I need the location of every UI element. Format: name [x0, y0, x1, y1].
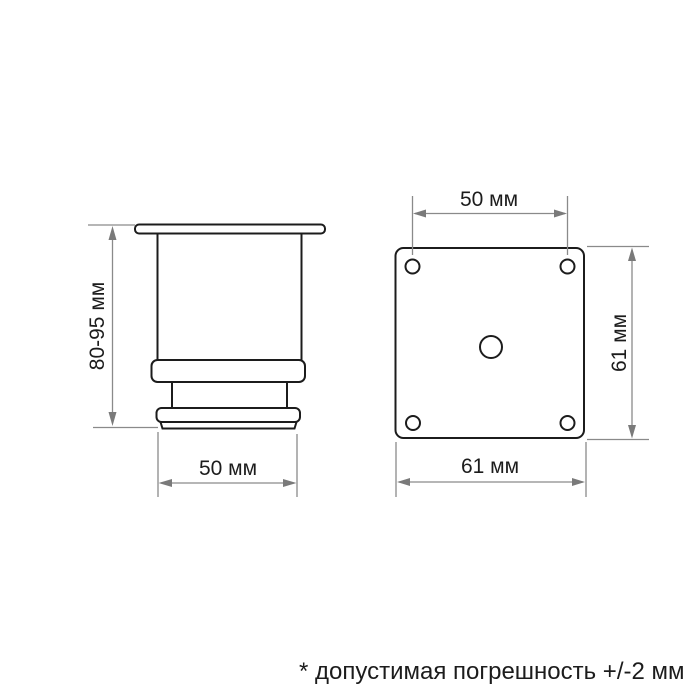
side-view-adjuster-collar: [152, 360, 306, 382]
side-view-drawing: [135, 225, 325, 429]
top-view-hole-spacing-dimension: 50 мм: [413, 188, 568, 255]
plate-width-arrow-left-icon: [397, 478, 410, 486]
hole-spacing-arrow-right-icon: [554, 210, 567, 218]
width-dim-label: 50 мм: [199, 457, 257, 480]
height-dim-arrow-down-icon: [109, 412, 117, 426]
plate-height-dim-label: 61 мм: [608, 314, 631, 372]
width-dim-arrow-left-icon: [159, 479, 173, 487]
technical-drawing-page: 80-95 мм 50 мм 50 мм: [0, 0, 700, 700]
top-view-plate-width-dimension: 61 мм: [396, 442, 586, 497]
top-view-mounting-plate: [396, 248, 585, 438]
side-view-top-plate: [135, 225, 325, 234]
plate-height-arrow-up-icon: [628, 248, 636, 262]
plate-width-arrow-right-icon: [572, 478, 585, 486]
furniture-leg-drawing: 80-95 мм 50 мм 50 мм: [0, 0, 700, 700]
side-view-width-dimension: 50 мм: [158, 432, 297, 497]
height-dim-label: 80-95 мм: [86, 282, 109, 370]
top-view-drawing: [396, 248, 585, 438]
side-view-foot-cap: [157, 408, 301, 422]
plate-width-dim-label: 61 мм: [461, 455, 519, 478]
side-view-height-dimension: 80-95 мм: [86, 225, 158, 428]
height-dim-arrow-up-icon: [109, 226, 117, 240]
plate-height-arrow-down-icon: [628, 425, 636, 439]
top-view-plate-height-dimension: 61 мм: [587, 247, 649, 440]
hole-spacing-arrow-left-icon: [413, 210, 426, 218]
width-dim-arrow-right-icon: [283, 479, 297, 487]
tolerance-footnote: * допустимая погрешность +/-2 мм: [299, 658, 685, 686]
hole-spacing-dim-label: 50 мм: [460, 188, 518, 211]
